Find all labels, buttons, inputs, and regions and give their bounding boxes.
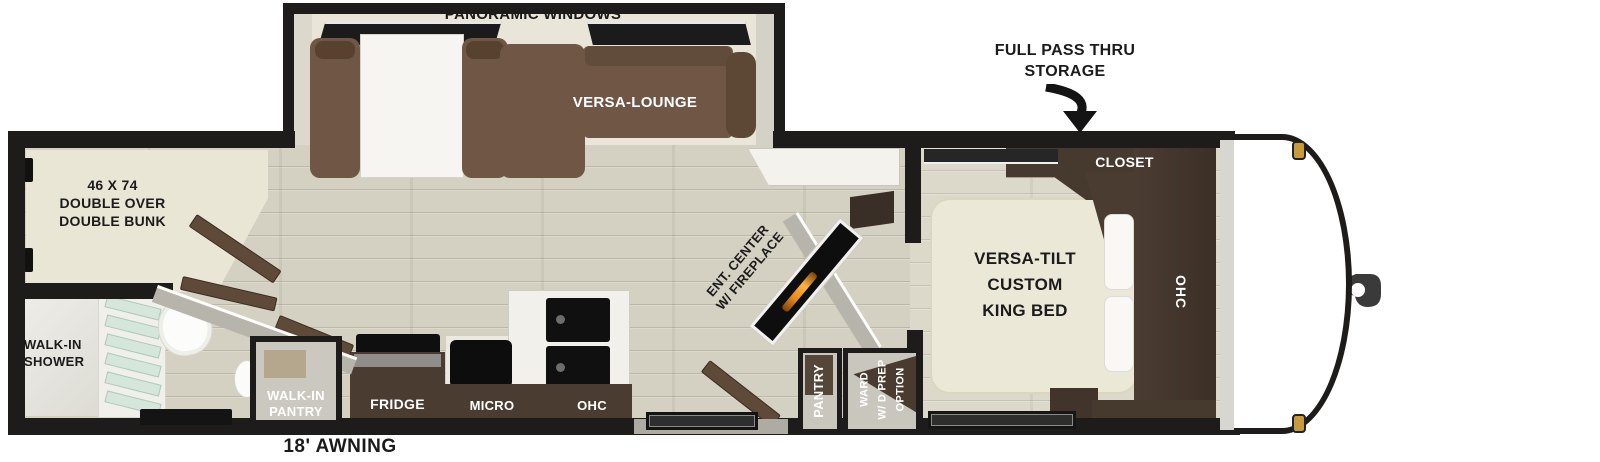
storage-callout: FULL PASS THRU STORAGE [980, 40, 1150, 82]
entry-step-mat [646, 412, 758, 430]
tilt-bed-mattress [360, 34, 464, 178]
marker-light-bottom [1292, 414, 1306, 433]
awning-label: 18' AWNING [260, 436, 420, 458]
top-wall-left [8, 131, 295, 148]
closet-label: CLOSET [1072, 154, 1177, 171]
bunk-label-line2: DOUBLE OVER [30, 194, 195, 212]
ward-label-line3: OPTION [895, 350, 910, 430]
marker-light-top [1292, 141, 1306, 160]
burner-knob [556, 363, 565, 372]
king-bed-line3: KING BED [930, 298, 1120, 324]
walk-in-shower-label: WALK-IN SHOWER [24, 336, 114, 370]
burner-knob [556, 315, 565, 324]
bunk-label-line3: DOUBLE BUNK [30, 212, 195, 230]
bedroom-window [924, 149, 1058, 164]
storage-callout-line2: STORAGE [980, 61, 1150, 82]
panoramic-windows-label: PANORAMIC WINDOWS [383, 6, 683, 24]
storage-callout-line1: FULL PASS THRU [980, 40, 1150, 61]
bunk-label: 46 X 74 DOUBLE OVER DOUBLE BUNK [30, 176, 195, 230]
bedroom-entry-mat [928, 411, 1076, 429]
top-wall-right [773, 131, 1235, 148]
tilt-bed-cushion-left [310, 38, 360, 178]
ward-label-line2: W/ D PREP [877, 350, 892, 430]
bunk-bracket-bottom [24, 248, 33, 272]
walk-in-pantry-line1: WALK-IN [252, 388, 340, 404]
pantry-label: PANTRY [811, 351, 827, 431]
front-cap [1234, 134, 1352, 434]
overhead-counter [748, 148, 900, 186]
walk-in-pantry-line2: PANTRY [252, 404, 340, 420]
microwave [450, 340, 512, 388]
king-bed-label: VERSA-TILT CUSTOM KING BED [930, 246, 1120, 324]
walk-in-shower-line2: SHOWER [24, 353, 114, 370]
king-bed-line1: VERSA-TILT [930, 246, 1120, 272]
versa-lounge-back [585, 46, 731, 66]
slideout-inner-wall-right [756, 14, 774, 145]
fridge-label: FRIDGE [350, 396, 445, 413]
versa-lounge-arm [726, 52, 756, 138]
floorplan-canvas: PANORAMIC WINDOWS VERSA-LOUNGE 46 X 74 D… [0, 0, 1600, 462]
tv-panel [850, 191, 894, 229]
tilt-bed-pillow-left [315, 41, 355, 59]
cooktop-burner-top [546, 298, 610, 342]
panoramic-window-right [587, 22, 751, 45]
bedroom-ohc-label: OHC [1173, 252, 1189, 332]
walk-in-pantry-label: WALK-IN PANTRY [252, 388, 340, 420]
versa-lounge-label: VERSA-LOUNGE [555, 94, 715, 112]
bunk-label-line1: 46 X 74 [30, 176, 195, 194]
fridge-vent [354, 354, 441, 367]
king-bed-line2: CUSTOM [930, 272, 1120, 298]
storage-arrow-icon [1042, 84, 1100, 134]
kitchen-ohc-label: OHC [556, 398, 628, 413]
bathroom-top-wall [8, 283, 173, 299]
ward-label-line1: WARD [859, 350, 874, 430]
tilt-bed-pillow-right [466, 41, 504, 59]
bedroom-wall-top [905, 148, 921, 243]
walk-in-shower-line1: WALK-IN [24, 336, 114, 353]
pantry-shelf [264, 350, 306, 378]
micro-label: MICRO [452, 398, 532, 413]
shower-floor-mat [140, 409, 232, 425]
